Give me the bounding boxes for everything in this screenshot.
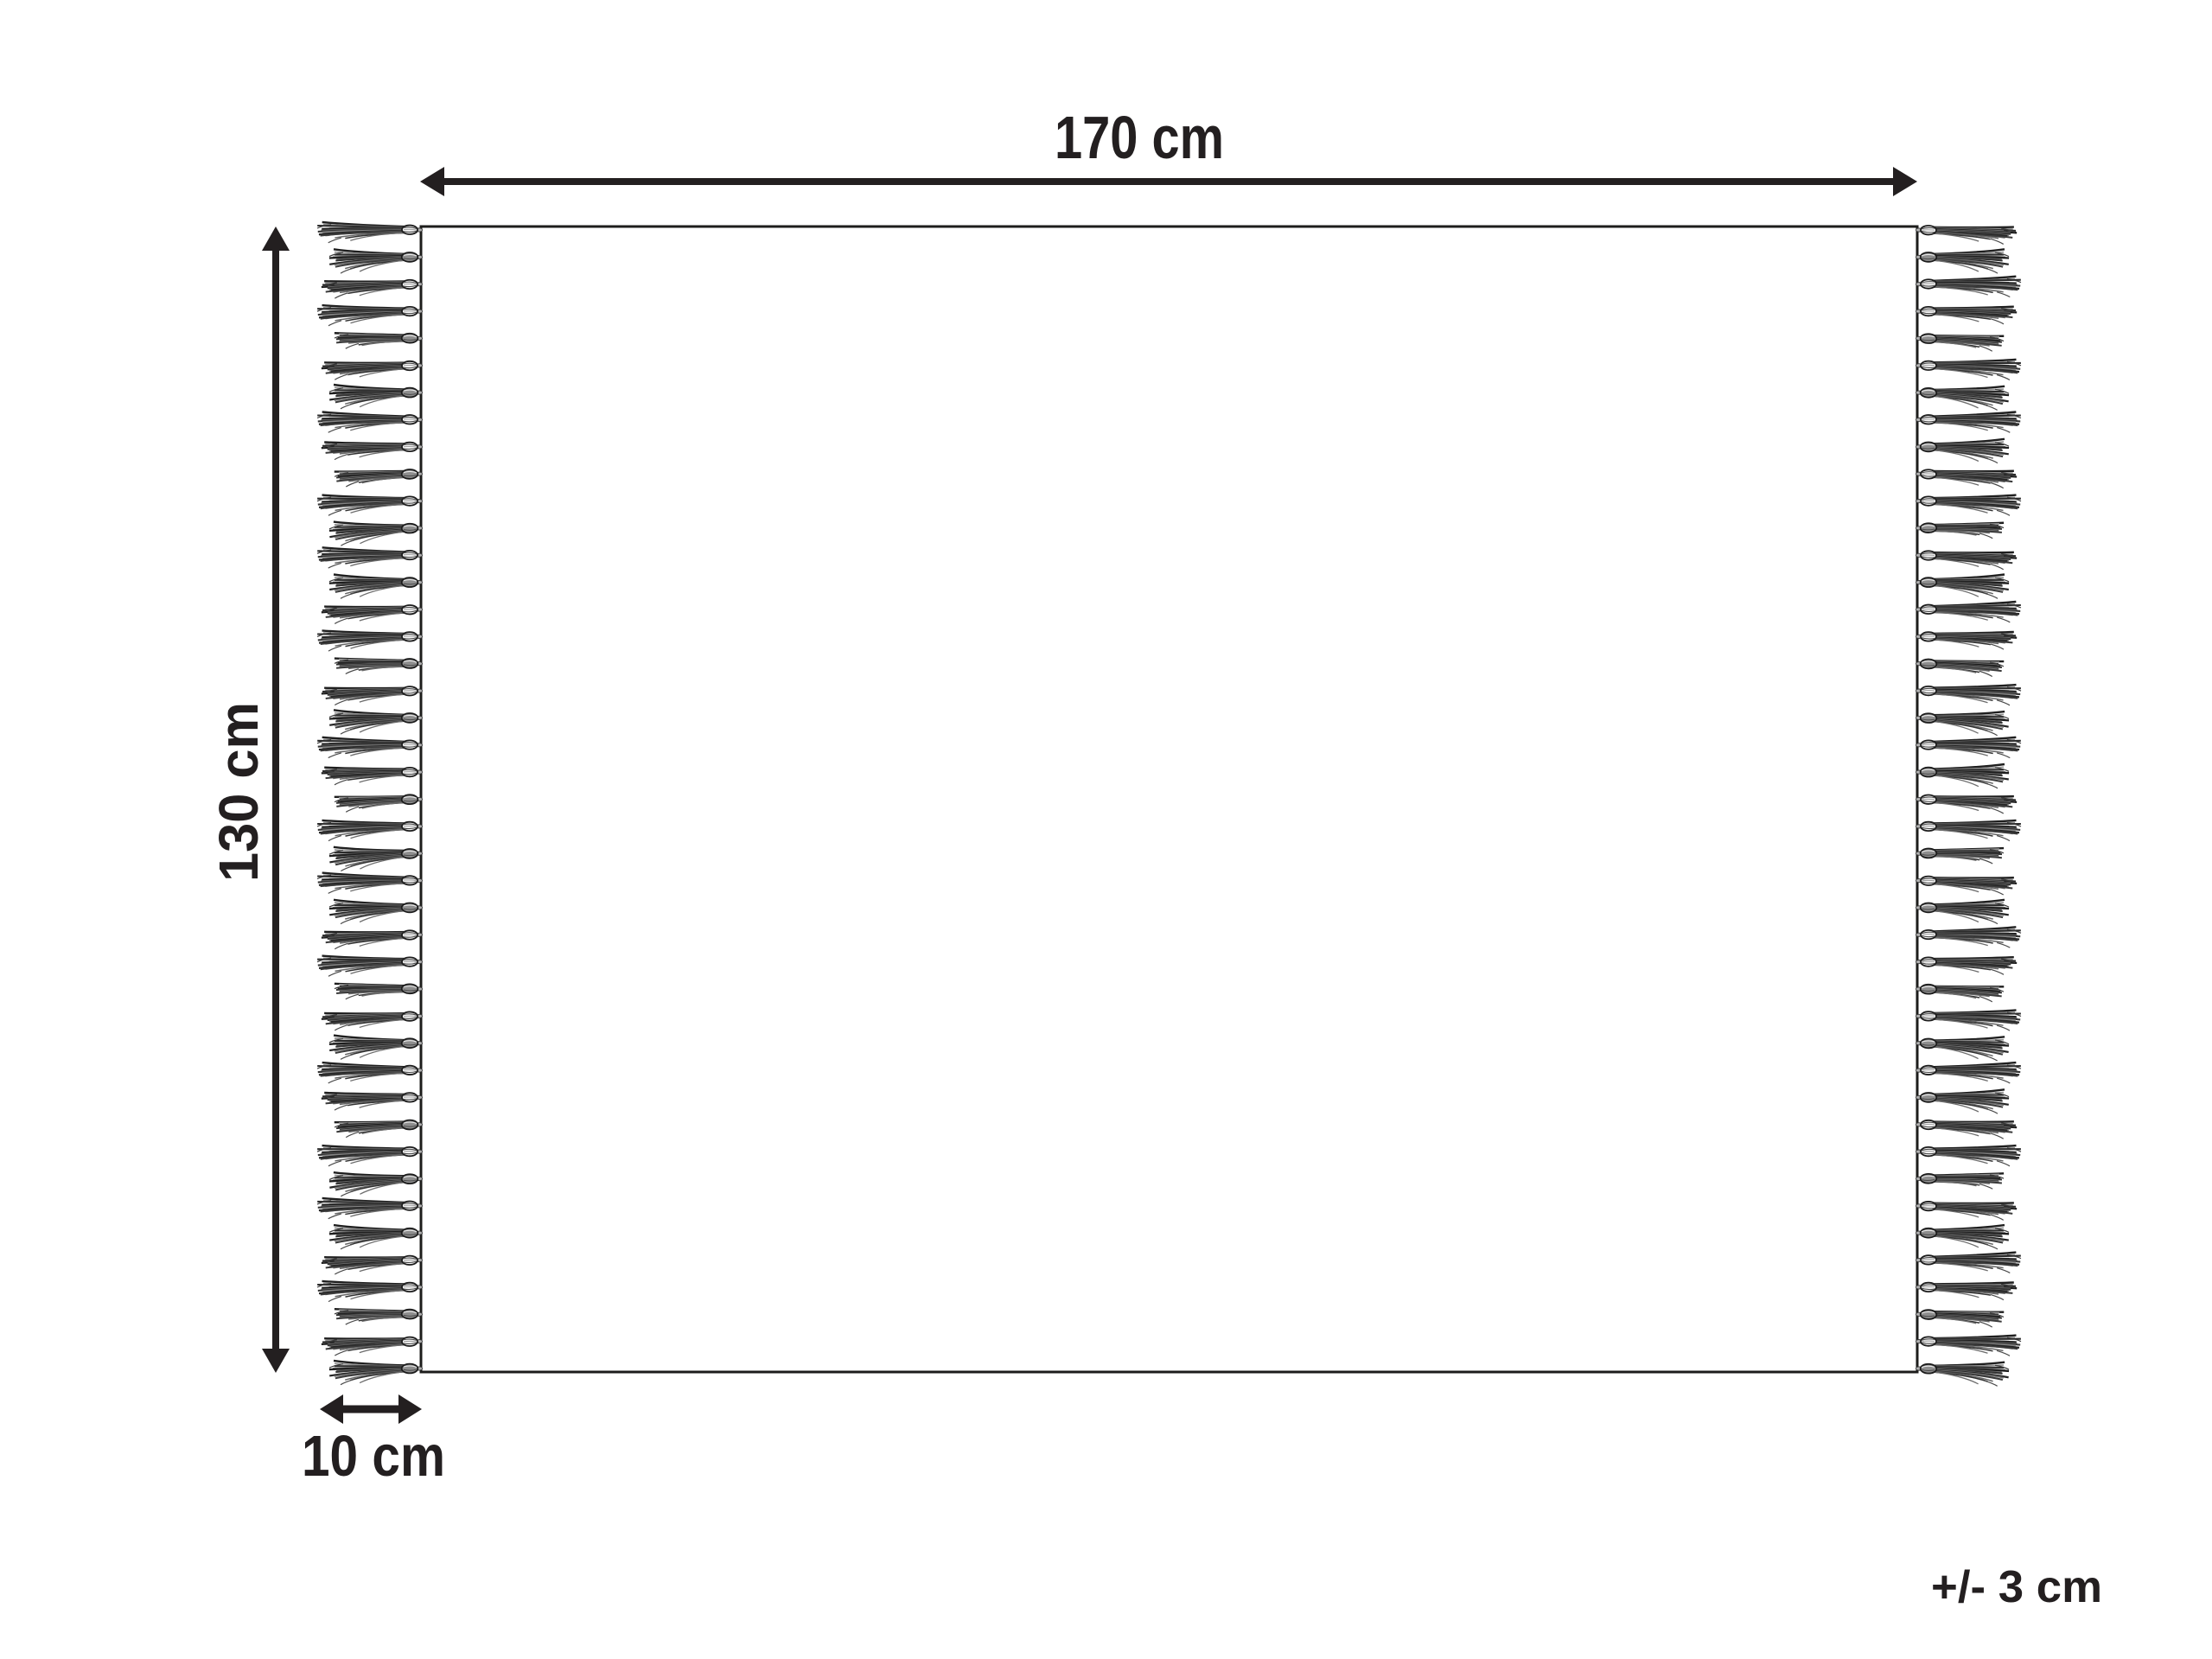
svg-text:170 cm: 170 cm	[1055, 104, 1224, 171]
svg-text:+/- 3 cm: +/- 3 cm	[1931, 1562, 2102, 1612]
svg-text:130 cm: 130 cm	[207, 702, 270, 882]
svg-text:10 cm: 10 cm	[302, 1424, 445, 1489]
